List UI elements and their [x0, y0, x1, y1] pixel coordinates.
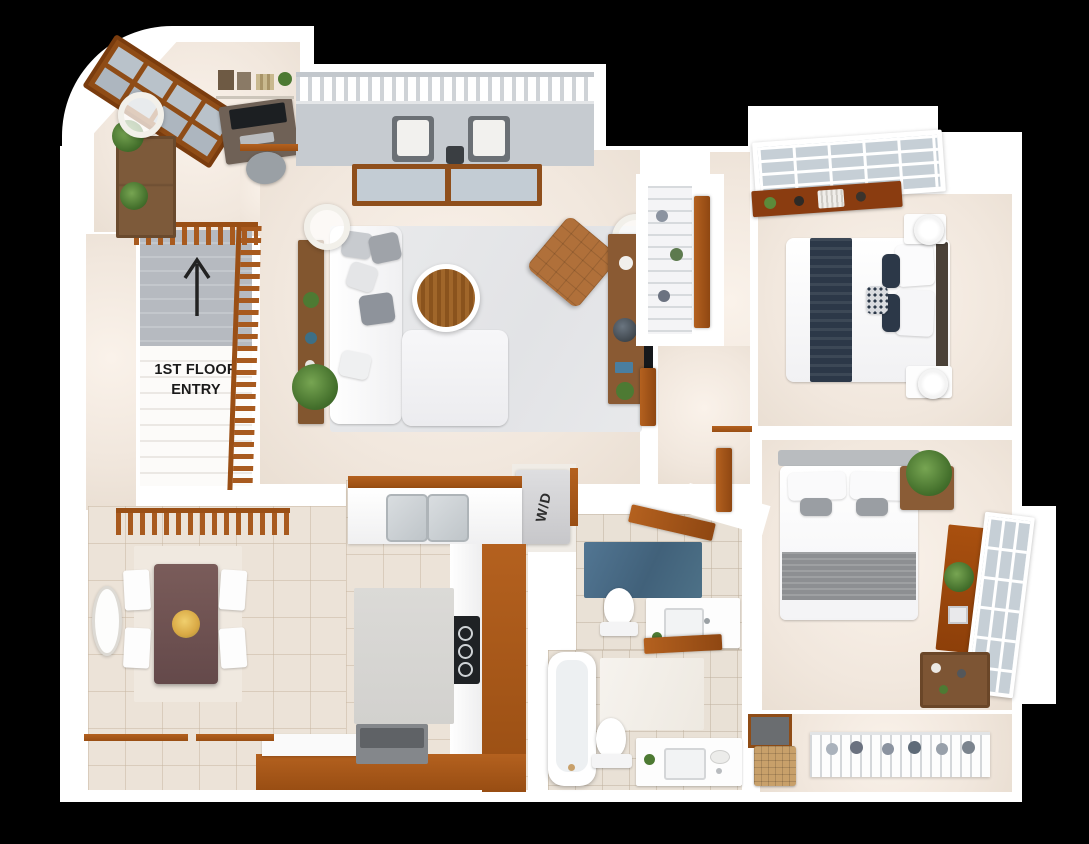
- master-bedroom-door: [640, 368, 656, 426]
- master-bed-runner: [810, 238, 852, 382]
- master-accent-pillow: [882, 254, 900, 288]
- bedroom2-pillow: [788, 471, 847, 501]
- living-floor-lamp-left: [304, 204, 350, 250]
- floor-plan-rendering: 1ST FLOOR ENTRY: [0, 0, 1089, 844]
- hall-closet-door: [694, 196, 710, 328]
- bathtub-basin: [556, 660, 588, 772]
- balcony-floor: [296, 96, 594, 166]
- console-decor: [305, 332, 317, 344]
- door-mullion: [445, 169, 451, 201]
- bedroom2-accent-pillow: [856, 498, 888, 516]
- bedroom2-accent-pillow: [800, 498, 832, 516]
- coffee-table: [412, 264, 480, 332]
- closet-shoes: [850, 741, 863, 754]
- entry-plant-bottom: [120, 182, 148, 210]
- bedroom2-plant: [906, 450, 952, 496]
- burner: [458, 644, 473, 659]
- toilet2-bowl: [596, 718, 626, 758]
- bedroom2-door: [716, 448, 732, 512]
- dresser-plant: [764, 197, 777, 210]
- washer-dryer-label: W/D: [532, 491, 554, 524]
- kitchen-counter-bottom: [262, 734, 358, 756]
- master-headboard: [936, 242, 948, 378]
- balcony-chair-right: [468, 116, 510, 162]
- closet-clothes: [936, 743, 948, 755]
- master-pillow: [895, 243, 936, 288]
- shelf-books: [256, 74, 274, 90]
- media-decor-globe: [613, 318, 637, 342]
- balcony-sliding-door: [352, 164, 542, 206]
- master-lamp-top: [914, 215, 944, 245]
- kitchen-counter-top-trim: [348, 476, 522, 488]
- hallway-south-floor: [658, 346, 750, 484]
- toilet2-tank: [592, 754, 632, 768]
- kitchen-sink-left: [386, 494, 428, 542]
- media-decor-book: [615, 362, 633, 373]
- master-doorway-threshold: [712, 426, 752, 432]
- dining-chair: [219, 569, 248, 611]
- kitchen-floor-mat: [354, 588, 454, 724]
- shelf-box: [218, 70, 234, 90]
- range-oven: [356, 724, 428, 764]
- balcony-side-table: [446, 146, 464, 164]
- balcony-railing: [296, 72, 594, 104]
- sofa-chaise: [402, 330, 508, 426]
- kitchen-sink-right: [427, 494, 469, 542]
- hall-closet-shelving: [648, 186, 692, 334]
- dining-wall-rack: [116, 508, 290, 535]
- vanity2-sink: [664, 748, 706, 780]
- coffee-table-top: [417, 269, 475, 327]
- window-sill-frame: [948, 606, 968, 624]
- dining-chair: [123, 627, 151, 668]
- closet-mirror: [748, 714, 792, 748]
- toilet1-tank: [600, 622, 638, 636]
- bedroom2-blanket: [782, 552, 916, 602]
- shelf-plant: [278, 72, 292, 86]
- dresser-books: [817, 189, 844, 209]
- closet-basket: [754, 746, 796, 786]
- closet-clothes: [962, 741, 975, 754]
- laundry-door-frame: [570, 468, 578, 526]
- closet-clothes: [882, 743, 894, 755]
- burner: [458, 626, 473, 641]
- entry-living-threshold: [240, 144, 298, 151]
- window-sill-right: [196, 734, 274, 741]
- sofa-pillow: [358, 292, 396, 326]
- dresser-bowl: [794, 196, 805, 207]
- vanity2-plant: [644, 754, 655, 765]
- vanity2-soap: [716, 768, 722, 774]
- washer-dryer-unit: W/D: [516, 470, 570, 544]
- media-decor-ball: [619, 256, 633, 270]
- bedroom2-headboard: [778, 450, 920, 466]
- dresser-decor: [957, 669, 966, 678]
- window-sill-left: [84, 734, 188, 741]
- wall-shelf-books: [216, 66, 294, 99]
- dresser-decor: [931, 663, 941, 673]
- balcony-chair-left: [392, 116, 434, 162]
- bedroom2-sheet-fold: [782, 600, 916, 618]
- dining-chair: [123, 569, 151, 610]
- burner: [458, 662, 473, 677]
- toilet1-bowl: [604, 588, 634, 626]
- bathtub-faucet: [568, 764, 575, 771]
- dresser-bowl: [856, 191, 867, 202]
- console-plant: [303, 292, 319, 308]
- closet-item: [658, 290, 670, 302]
- bathroom2-vanity: [636, 738, 742, 786]
- closet-wire-shelf: [810, 732, 990, 777]
- up-arrow-icon: [180, 256, 214, 320]
- media-decor-plant: [616, 382, 634, 400]
- dresser-decor: [939, 685, 948, 694]
- entry-floor-lamp: [118, 92, 164, 138]
- closet-item: [656, 210, 668, 222]
- vanity2-tray: [710, 750, 730, 764]
- dining-chair: [219, 627, 248, 669]
- master-pillow: [895, 289, 935, 337]
- vanity1-faucet: [704, 618, 710, 624]
- master-lamp-bottom: [918, 369, 948, 399]
- living-room-plant: [292, 364, 338, 410]
- window-sill-plant: [944, 562, 974, 592]
- bathtub: [548, 652, 596, 786]
- master-pattern-pillow: [866, 286, 888, 314]
- bathroom1-rug: [584, 542, 702, 598]
- chair-cushion: [473, 120, 505, 156]
- closet-item: [670, 248, 683, 261]
- range-top: [360, 728, 424, 748]
- bedroom2-dresser: [920, 652, 990, 708]
- table-centerpiece-flowers: [172, 610, 200, 638]
- chair-cushion: [397, 120, 429, 156]
- wall-clock: [92, 586, 122, 656]
- closet-clothes: [908, 741, 921, 754]
- shelf-box: [237, 72, 251, 90]
- closet-shoes: [826, 743, 838, 755]
